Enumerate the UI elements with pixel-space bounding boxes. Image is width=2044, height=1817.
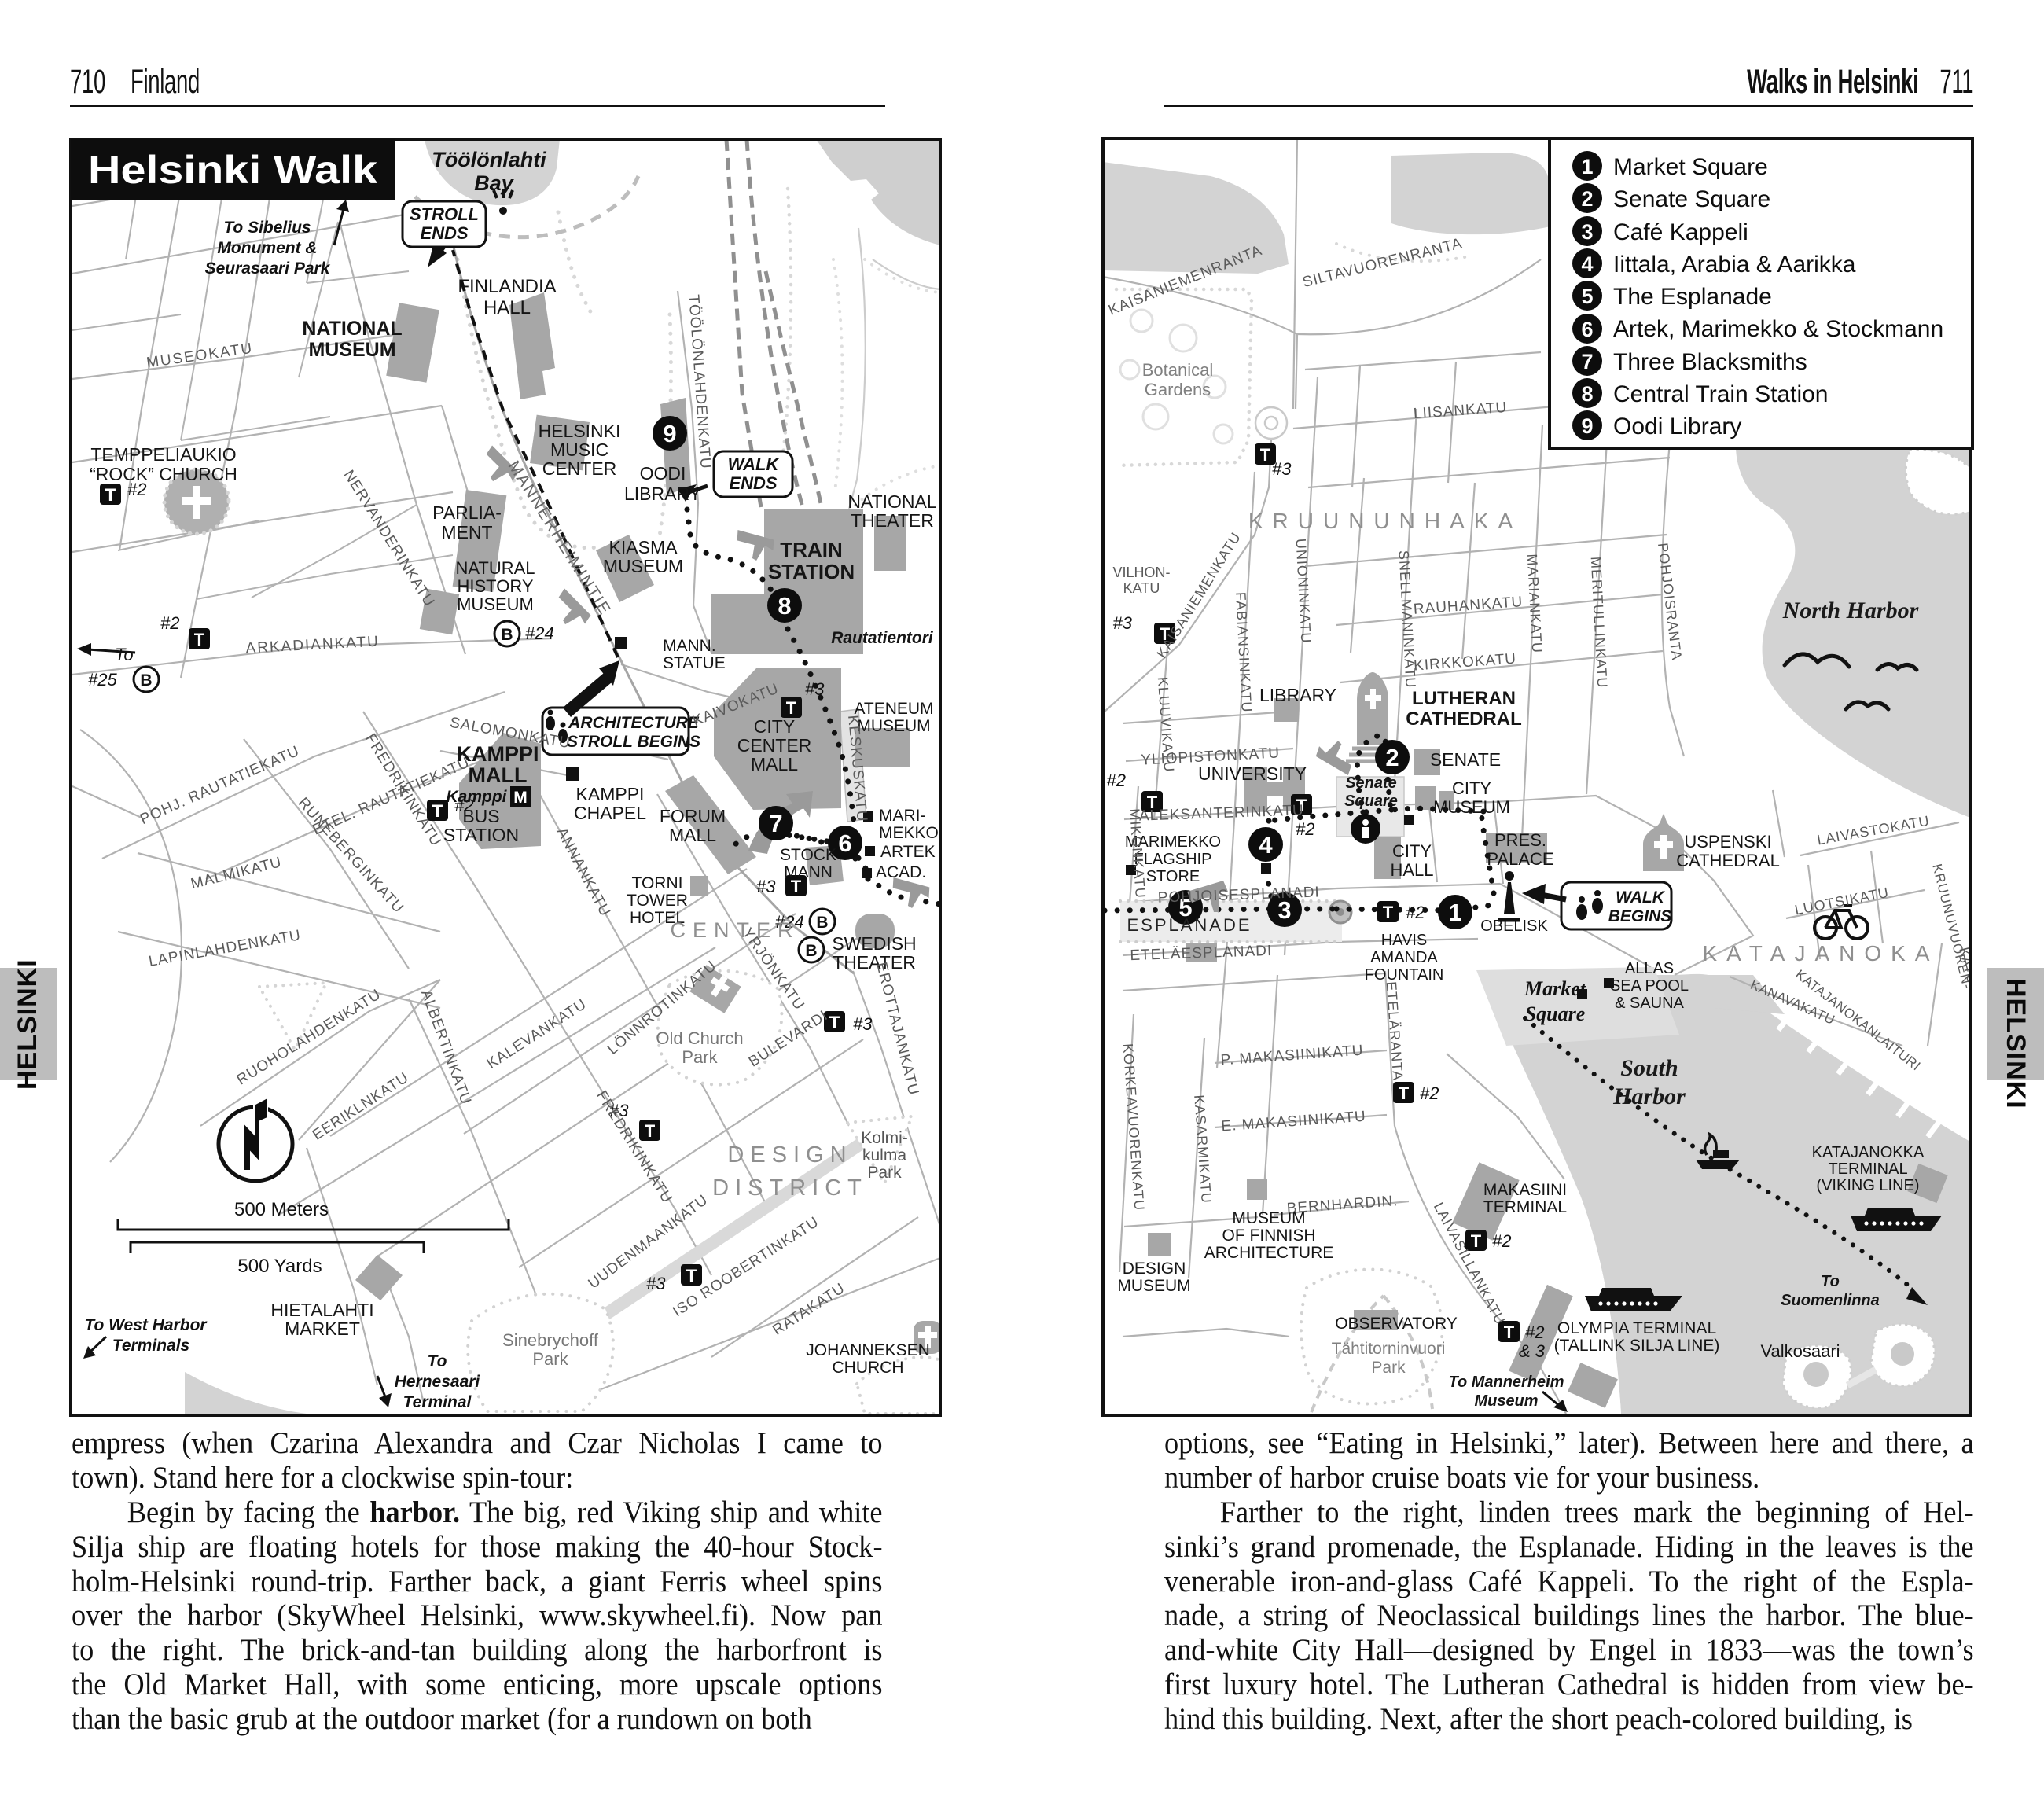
svg-text:M: M xyxy=(513,789,528,807)
svg-text:STROLL: STROLL xyxy=(410,204,479,224)
svg-text:HAVIS: HAVIS xyxy=(1381,932,1428,949)
svg-text:To West Harbor: To West Harbor xyxy=(84,1316,208,1334)
svg-text:500 Yards: 500 Yards xyxy=(237,1256,322,1277)
svg-text:MALL: MALL xyxy=(751,754,798,774)
svg-text:SENATE: SENATE xyxy=(1430,749,1501,770)
svg-text:Tähtitorninvuori: Tähtitorninvuori xyxy=(1332,1340,1446,1358)
svg-text:(VIKING LINE): (VIKING LINE) xyxy=(1816,1177,1919,1194)
svg-text:B: B xyxy=(805,942,817,960)
svg-text:KATAJANOKA: KATAJANOKA xyxy=(1702,941,1939,966)
svg-text:Suomenlinna: Suomenlinna xyxy=(1781,1292,1880,1309)
svg-text:UNIVERSITY: UNIVERSITY xyxy=(1198,763,1307,784)
svg-text:KAMPPI: KAMPPI xyxy=(576,784,645,804)
svg-text:#24: #24 xyxy=(525,623,554,643)
svg-text:Three Blacksmiths: Three Blacksmiths xyxy=(1613,349,1807,375)
svg-text:T: T xyxy=(1504,1322,1515,1342)
svg-text:Market Square: Market Square xyxy=(1613,154,1768,180)
svg-text:MALL: MALL xyxy=(669,825,716,845)
svg-text:OF FINNISH: OF FINNISH xyxy=(1222,1227,1316,1245)
svg-text:PRES.: PRES. xyxy=(1494,830,1546,850)
svg-text:TORNI: TORNI xyxy=(632,874,683,892)
svg-text:& SAUNA: & SAUNA xyxy=(1615,995,1684,1012)
svg-text:To Mannerheim: To Mannerheim xyxy=(1448,1374,1564,1391)
svg-text:Park: Park xyxy=(532,1349,568,1369)
svg-text:MUSEUM: MUSEUM xyxy=(457,594,534,614)
svg-text:WALK: WALK xyxy=(1616,888,1666,907)
svg-text:KATAJANOKKA: KATAJANOKKA xyxy=(1812,1144,1925,1161)
svg-text:Gardens: Gardens xyxy=(1145,380,1211,399)
svg-text:Artek, Marimekko & Stockmann: Artek, Marimekko & Stockmann xyxy=(1613,316,1943,342)
svg-text:MENT: MENT xyxy=(441,522,492,543)
svg-text:Helsinki Walk: Helsinki Walk xyxy=(88,148,377,192)
svg-text:MARKET: MARKET xyxy=(285,1319,360,1339)
svg-text:DESIGN: DESIGN xyxy=(1123,1260,1186,1278)
svg-text:STROLL BEGINS: STROLL BEGINS xyxy=(567,733,700,751)
svg-text:T: T xyxy=(194,630,205,649)
svg-text:South: South xyxy=(1620,1055,1678,1081)
svg-text:THEATER: THEATER xyxy=(851,510,934,531)
svg-text:Terminal: Terminal xyxy=(403,1393,472,1411)
svg-text:Park: Park xyxy=(1371,1359,1406,1377)
svg-text:Harbor: Harbor xyxy=(1612,1083,1686,1109)
svg-text:ARCHITECTURE: ARCHITECTURE xyxy=(568,714,700,732)
svg-text:MANN.: MANN. xyxy=(663,637,716,655)
svg-text:MUSEUM: MUSEUM xyxy=(603,556,683,576)
svg-text:T: T xyxy=(1471,1231,1482,1251)
svg-text:OBELISK: OBELISK xyxy=(1480,918,1548,935)
svg-text:#3: #3 xyxy=(1113,613,1133,633)
svg-text:(TALLINK SILJA LINE): (TALLINK SILJA LINE) xyxy=(1554,1337,1720,1355)
svg-text:Senate Square: Senate Square xyxy=(1613,186,1770,212)
svg-text:The Esplanade: The Esplanade xyxy=(1613,284,1772,310)
svg-text:Central Train Station: Central Train Station xyxy=(1613,381,1828,407)
svg-text:STATION: STATION xyxy=(443,825,519,845)
svg-text:TERMINAL: TERMINAL xyxy=(1483,1198,1567,1216)
svg-text:4: 4 xyxy=(1259,831,1273,859)
svg-text:NATIONAL: NATIONAL xyxy=(847,491,937,512)
svg-text:To: To xyxy=(1821,1273,1840,1290)
svg-text:ALLAS: ALLAS xyxy=(1625,960,1674,977)
svg-text:#2: #2 xyxy=(1420,1083,1439,1103)
svg-text:HELSINKI: HELSINKI xyxy=(539,421,621,441)
svg-text:CITY: CITY xyxy=(754,716,795,737)
svg-text:JOHANNEKSEN: JOHANNEKSEN xyxy=(806,1341,930,1359)
svg-text:ACAD.: ACAD. xyxy=(876,863,926,881)
svg-text:“ROCK” CHURCH: “ROCK” CHURCH xyxy=(90,464,237,484)
svg-text:#3: #3 xyxy=(853,1014,873,1034)
svg-text:#2: #2 xyxy=(1525,1322,1544,1342)
svg-text:2: 2 xyxy=(1581,187,1593,211)
svg-text:PARLIA-: PARLIA- xyxy=(432,502,502,523)
svg-text:PALACE: PALACE xyxy=(1487,849,1553,869)
svg-text:WALK: WALK xyxy=(728,454,781,474)
svg-text:Park: Park xyxy=(682,1047,718,1067)
svg-text:#2: #2 xyxy=(1107,771,1126,790)
svg-text:9: 9 xyxy=(1581,414,1593,438)
svg-text:ENDS: ENDS xyxy=(729,473,777,493)
svg-text:#3: #3 xyxy=(646,1274,666,1293)
svg-text:Terminals: Terminals xyxy=(112,1337,189,1355)
svg-text:#3: #3 xyxy=(805,679,825,699)
svg-text:TERMINAL: TERMINAL xyxy=(1828,1160,1907,1178)
svg-text:9: 9 xyxy=(663,420,676,447)
svg-text:MEKKO: MEKKO xyxy=(879,824,939,842)
svg-text:MUSEUM: MUSEUM xyxy=(857,717,930,735)
svg-text:ATENEUM: ATENEUM xyxy=(854,700,933,718)
svg-text:7: 7 xyxy=(1581,350,1593,373)
svg-text:T: T xyxy=(645,1121,656,1141)
svg-text:Café Kappeli: Café Kappeli xyxy=(1613,219,1748,245)
svg-text:CITY: CITY xyxy=(1452,778,1491,798)
svg-text:#2: #2 xyxy=(1296,819,1314,839)
svg-text:1: 1 xyxy=(1581,155,1593,178)
svg-text:MUSEUM: MUSEUM xyxy=(1433,797,1510,817)
svg-text:T: T xyxy=(1399,1083,1410,1103)
svg-text:CENTER: CENTER xyxy=(737,735,812,756)
svg-text:LIBRARY: LIBRARY xyxy=(1259,685,1336,705)
svg-text:Museum: Museum xyxy=(1474,1392,1538,1410)
svg-text:Botanical: Botanical xyxy=(1142,360,1214,380)
svg-text:NATIONAL: NATIONAL xyxy=(302,318,402,340)
svg-text:ARTEK: ARTEK xyxy=(880,843,936,861)
svg-text:USPENSKI: USPENSKI xyxy=(1684,832,1771,851)
svg-text:North Harbor: North Harbor xyxy=(1782,598,1919,623)
svg-text:DESIGN: DESIGN xyxy=(727,1142,852,1168)
svg-text:To: To xyxy=(428,1352,447,1370)
svg-text:Töölönlahti: Töölönlahti xyxy=(432,148,546,171)
svg-text:kulma: kulma xyxy=(862,1146,906,1164)
svg-text:MANN: MANN xyxy=(784,863,833,881)
svg-text:DISTRICT: DISTRICT xyxy=(712,1175,868,1201)
svg-text:LUTHERAN: LUTHERAN xyxy=(1412,688,1516,709)
svg-text:T: T xyxy=(786,698,797,718)
svg-text:CATHEDRAL: CATHEDRAL xyxy=(1406,708,1522,730)
svg-text:KATU: KATU xyxy=(1123,580,1160,596)
svg-text:T: T xyxy=(105,485,116,505)
svg-text:2: 2 xyxy=(1385,744,1399,771)
svg-text:MUSIC: MUSIC xyxy=(550,440,608,460)
svg-text:Oodi Library: Oodi Library xyxy=(1613,414,1741,440)
svg-text:B: B xyxy=(816,914,828,932)
svg-text:T: T xyxy=(1383,903,1394,922)
svg-text:HALL: HALL xyxy=(483,297,531,318)
svg-text:ARCHITECTURE: ARCHITECTURE xyxy=(1204,1244,1334,1262)
svg-text:OODI: OODI xyxy=(640,463,686,484)
svg-text:To Sibelius: To Sibelius xyxy=(223,219,311,237)
svg-text:4: 4 xyxy=(1581,252,1593,276)
svg-text:#2: #2 xyxy=(1406,903,1425,922)
svg-text:CATHEDRAL: CATHEDRAL xyxy=(1676,851,1780,870)
svg-text:FINLANDIA: FINLANDIA xyxy=(458,276,556,297)
svg-text:& 3: & 3 xyxy=(1519,1341,1546,1361)
svg-text:LIBRARY: LIBRARY xyxy=(624,484,701,504)
svg-text:STATUE: STATUE xyxy=(663,654,726,672)
svg-text:NATURAL: NATURAL xyxy=(455,558,535,578)
svg-text:8: 8 xyxy=(778,592,791,620)
svg-text:CHURCH: CHURCH xyxy=(833,1359,904,1377)
svg-text:KRUUNUNHAKA: KRUUNUNHAKA xyxy=(1248,509,1522,533)
svg-text:Rautatientori: Rautatientori xyxy=(831,629,934,647)
svg-text:#2: #2 xyxy=(1492,1231,1511,1251)
svg-text:STOCK: STOCK xyxy=(780,846,836,864)
svg-text:OBSERVATORY: OBSERVATORY xyxy=(1335,1315,1458,1333)
svg-text:TRAIN: TRAIN xyxy=(780,538,842,561)
svg-text:T: T xyxy=(432,801,443,821)
svg-text:#3: #3 xyxy=(756,877,776,896)
svg-text:T: T xyxy=(1260,445,1271,465)
svg-text:CENTER: CENTER xyxy=(542,458,617,479)
svg-text:TEMPPELIAUKIO: TEMPPELIAUKIO xyxy=(90,444,236,465)
svg-text:CHAPEL: CHAPEL xyxy=(574,803,646,823)
svg-text:Hernesaari: Hernesaari xyxy=(395,1373,481,1391)
svg-text:7: 7 xyxy=(769,810,782,837)
svg-text:Park: Park xyxy=(867,1164,902,1182)
svg-text:Square: Square xyxy=(1525,1002,1586,1025)
svg-text:BUS: BUS xyxy=(462,806,499,826)
svg-text:CITY: CITY xyxy=(1392,841,1432,861)
svg-text:T: T xyxy=(686,1266,697,1286)
svg-text:SWEDISH: SWEDISH xyxy=(832,933,916,954)
svg-text:#2: #2 xyxy=(160,613,179,633)
svg-text:1: 1 xyxy=(1448,899,1461,926)
svg-text:Senate: Senate xyxy=(1345,774,1397,792)
svg-text:KIASMA: KIASMA xyxy=(609,537,678,557)
svg-text:500 Meters: 500 Meters xyxy=(234,1199,329,1220)
svg-text:STATION: STATION xyxy=(768,560,855,583)
svg-text:Seurasaari Park: Seurasaari Park xyxy=(205,259,331,278)
svg-text:STORE: STORE xyxy=(1146,868,1200,885)
svg-text:3: 3 xyxy=(1581,220,1593,244)
svg-text:B: B xyxy=(501,626,513,644)
svg-text:MALL: MALL xyxy=(469,763,528,787)
svg-text:Valkosaari: Valkosaari xyxy=(1760,1341,1840,1361)
svg-text:5: 5 xyxy=(1581,285,1593,308)
svg-text:MAKASIINI: MAKASIINI xyxy=(1483,1181,1567,1199)
svg-text:SEA POOL: SEA POOL xyxy=(1610,977,1689,995)
svg-text:Kamppi: Kamppi xyxy=(446,788,507,806)
svg-text:VILHON-: VILHON- xyxy=(1112,565,1170,580)
svg-text:6: 6 xyxy=(1581,318,1593,341)
svg-text:HIETALAHTI: HIETALAHTI xyxy=(270,1300,373,1320)
svg-text:#25: #25 xyxy=(88,670,117,690)
svg-text:Square: Square xyxy=(1344,793,1398,810)
svg-text:MARI-: MARI- xyxy=(879,807,926,825)
svg-text:BEGINS: BEGINS xyxy=(1608,907,1672,925)
svg-text:OLYMPIA TERMINAL: OLYMPIA TERMINAL xyxy=(1557,1319,1716,1337)
svg-text:ESPLANADE: ESPLANADE xyxy=(1127,915,1252,935)
svg-text:HALL: HALL xyxy=(1390,860,1433,880)
svg-text:6: 6 xyxy=(838,829,851,857)
svg-text:Monument &: Monument & xyxy=(217,239,317,257)
svg-text:Old Church: Old Church xyxy=(656,1028,743,1048)
svg-text:CENTER: CENTER xyxy=(670,918,800,942)
svg-text:T: T xyxy=(829,1013,840,1032)
svg-text:Market: Market xyxy=(1524,977,1586,1000)
svg-text:AMANDA: AMANDA xyxy=(1370,949,1438,966)
svg-text:Sinebrychoff: Sinebrychoff xyxy=(502,1330,599,1350)
svg-text:MUSEUM: MUSEUM xyxy=(308,339,395,361)
svg-text:#3: #3 xyxy=(1272,459,1292,479)
svg-text:Kolmi-: Kolmi- xyxy=(861,1129,908,1147)
svg-text:To: To xyxy=(115,645,134,664)
svg-text:ENDS: ENDS xyxy=(420,223,468,243)
svg-text:TOWER: TOWER xyxy=(627,892,688,910)
svg-text:8: 8 xyxy=(1581,382,1593,406)
svg-text:Iittala, Arabia & Aarikka: Iittala, Arabia & Aarikka xyxy=(1613,252,1856,278)
svg-text:HISTORY: HISTORY xyxy=(458,576,534,596)
svg-text:FOUNTAIN: FOUNTAIN xyxy=(1365,966,1444,984)
svg-text:FORUM: FORUM xyxy=(660,806,726,826)
svg-text:B: B xyxy=(140,671,152,690)
svg-text:MUSEUM: MUSEUM xyxy=(1117,1277,1190,1295)
